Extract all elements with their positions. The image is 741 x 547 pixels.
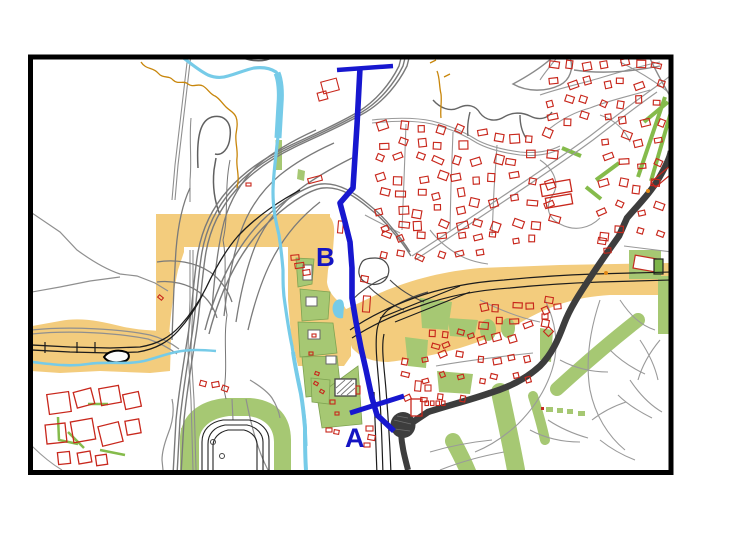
svg-text:B: B <box>316 242 335 272</box>
svg-text:A: A <box>345 423 365 453</box>
